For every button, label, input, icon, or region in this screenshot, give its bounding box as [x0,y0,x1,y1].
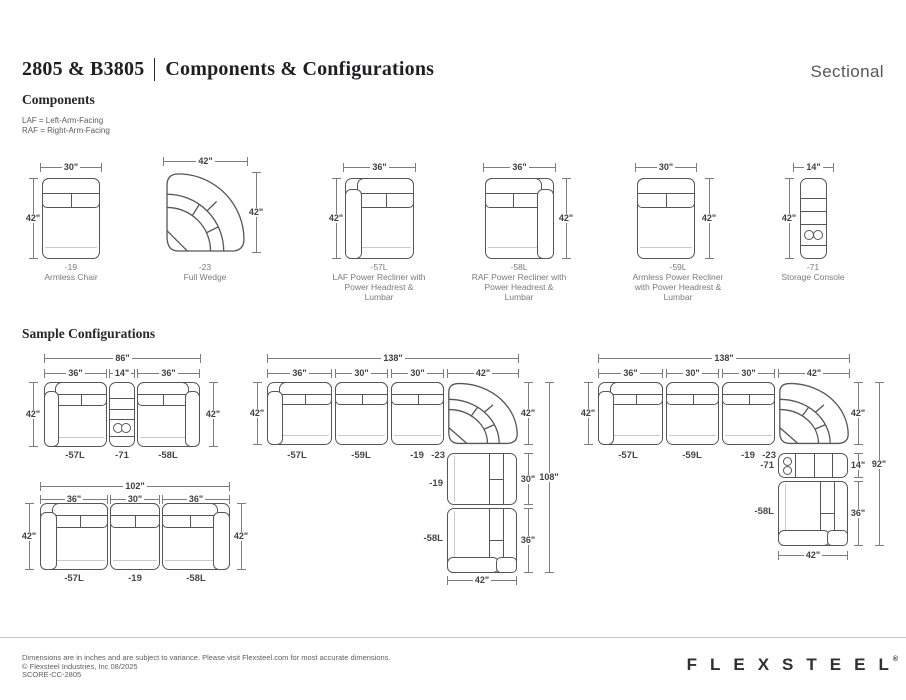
total-width-dimension: 138" [267,354,519,363]
back-cushion [279,382,332,405]
right-armrest [185,391,200,447]
total-width-dimension: 102" [40,482,230,491]
storage-console-diagram [778,453,848,478]
component-name: Full Wedge [165,272,245,282]
laf-recliner-diagram [345,178,414,259]
bottom-armrest [778,530,830,546]
category-label: Sectional [810,62,884,82]
piece-label: -57L [267,450,327,461]
piece-label: -71 [718,460,774,471]
full-wedge-diagram [778,382,850,445]
back-cushion [335,382,388,405]
storage-console-diagram [800,178,827,259]
bottom-armrest [447,557,499,573]
width-dimension: 42" [447,369,519,378]
corner-block [496,557,517,573]
back-cushion [110,503,160,528]
width-dimension: 30" [635,163,697,172]
armless-recliner-diagram [637,178,695,259]
cupholder-icon [121,423,131,433]
piece-label: -19 [105,573,165,584]
configurations-heading: Sample Configurations [22,326,155,342]
page-header: 2805 & B3805 Components & Configurations [22,56,434,82]
model-number: 2805 & B3805 [22,56,144,82]
components-heading: Components [22,92,95,108]
width-dimension: 36" [598,369,663,378]
width-dimension: 14" [109,369,135,378]
width-dimension: 36" [483,163,556,172]
width-dimension: 30" [391,369,444,378]
height-dimension: 42" [697,178,721,259]
piece-label: -59L [662,450,722,461]
laf-recliner-diagram [267,382,332,445]
bottom-width-dimension: 42" [778,551,848,560]
left-armrest [40,512,57,570]
height-dimension: 42" [21,382,45,447]
left-armrest [598,391,614,445]
component-code: -23 [175,262,235,272]
height-dimension: 42" [17,503,41,570]
height-dimension: 42" [229,503,253,570]
raf-recliner-diagram [778,481,848,546]
right-armrest [213,512,230,570]
raf-recliner-diagram [162,503,230,570]
armless-chair-diagram [447,453,517,505]
flexsteel-logo: FLEXSTEEL® [687,650,898,675]
back-cushion [722,382,775,405]
component-code: -59L [648,262,708,272]
armless-recliner-diagram [335,382,388,445]
component-name: Armless Chair [26,272,116,282]
width-dimension: 42" [163,157,248,166]
back-cushion [637,178,695,208]
armless-chair-diagram [42,178,100,259]
laf-recliner-diagram [598,382,663,445]
cupholder-icon [813,230,823,240]
corner-block [827,530,848,546]
piece-label: -57L [598,450,658,461]
height-dimension: 42" [201,382,225,447]
back-cushion [357,178,414,208]
armless-chair-diagram [391,382,444,445]
width-dimension: 30" [666,369,719,378]
total-height-dimension: 92" [867,382,891,546]
piece-label: -57L [44,573,104,584]
height-dimension: 42" [245,382,269,445]
height-dimension: 42" [777,178,801,259]
left-armrest [44,391,59,447]
component-name: RAF Power Recliner with Power Headrest &… [469,272,569,302]
raf-recliner-diagram [137,382,200,447]
storage-console-diagram [109,382,135,447]
component-code: -19 [41,262,101,272]
total-width-dimension: 86" [44,354,201,363]
back-cushion [666,382,719,405]
back-cushion [391,382,444,405]
legend-laf: LAF = Left-Arm-Facing [22,116,103,126]
title-divider [154,58,155,81]
component-code: -58L [489,262,549,272]
height-dimension: 42" [554,178,578,259]
component-code: -57L [349,262,409,272]
width-dimension: 36" [137,369,200,378]
back-cushion [52,503,108,528]
legend-raf: RAF = Right-Arm-Facing [22,126,110,136]
total-width-dimension: 138" [598,354,850,363]
right-armrest [537,189,554,259]
height-dimension: 42" [576,382,600,445]
width-dimension: 36" [267,369,332,378]
back-cushion [42,178,100,208]
piece-label: -19 [387,478,443,489]
full-wedge-diagram [165,172,246,253]
cupholder-icon [783,466,792,475]
spec-sheet-page: 2805 & B3805 Components & Configurations… [0,0,906,700]
width-dimension: 42" [778,369,850,378]
raf-recliner-diagram [447,508,517,573]
component-name: LAF Power Recliner with Power Headrest &… [329,272,429,302]
component-name: Armless Power Recliner with Power Headre… [626,272,730,302]
left-armrest [267,391,283,445]
piece-label: -23 [385,450,445,461]
page-title: Components & Configurations [165,56,434,82]
back-cushion [55,382,107,406]
piece-label: -58L [138,450,198,461]
cupholder-icon [783,457,792,466]
raf-recliner-diagram [485,178,554,259]
piece-label: -58L [387,533,443,544]
height-dimension: 42" [244,172,268,253]
bottom-width-dimension: 42" [447,576,517,585]
registered-trademark-icon: ® [893,656,898,663]
piece-label: -59L [331,450,391,461]
armless-recliner-diagram [666,382,719,445]
width-dimension: 36" [44,369,107,378]
piece-label: -58L [166,573,226,584]
width-dimension: 36" [343,163,416,172]
brand-name: FLEXSTEEL [687,655,902,674]
laf-recliner-diagram [40,503,108,570]
back-cushion [610,382,663,405]
width-dimension: 14" [793,163,834,172]
back-cushion [137,382,189,406]
width-dimension: 30" [722,369,775,378]
footer-sku: SCORE-CC-2805 [22,670,81,679]
footer-divider [0,637,906,638]
footer-disclaimer: Dimensions are in inches and are subject… [22,653,391,662]
left-armrest [345,189,362,259]
width-dimension: 30" [335,369,388,378]
total-height-dimension: 108" [537,382,561,573]
full-wedge-diagram [447,382,519,445]
back-cushion [162,503,218,528]
armless-chair-diagram [110,503,160,570]
component-code: -71 [783,262,843,272]
armless-chair-diagram [722,382,775,445]
piece-label: -58L [718,506,774,517]
back-cushion [485,178,542,208]
laf-recliner-diagram [44,382,107,447]
width-dimension: 30" [40,163,102,172]
component-name: Storage Console [773,272,853,282]
